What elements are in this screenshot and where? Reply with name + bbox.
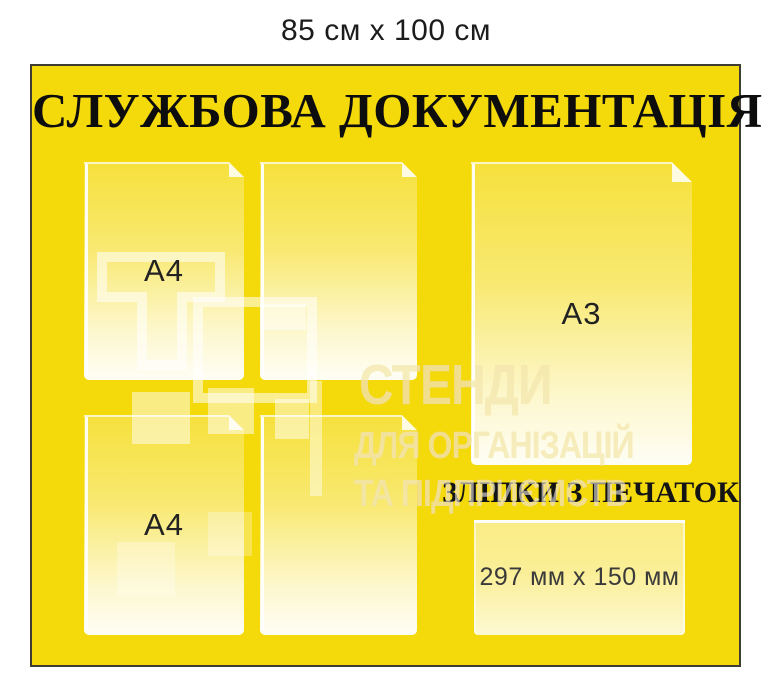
product-image: 85 см x 100 см СЛУЖБОВА ДОКУМЕНТАЦІЯ [0,0,772,700]
a4-pocket-top-middle [260,162,417,380]
pocket-fold-corner [402,415,417,430]
board-size-caption: 85 см x 100 см [0,14,772,48]
a4-pocket-top-left [84,162,244,380]
pocket-fold-corner [229,415,244,430]
a4-pocket-bottom-left [84,415,244,635]
stamps-section-title: ЗЛІПКИ З ПЕЧАТОК [442,476,718,510]
pocket-fold-corner [229,162,244,177]
pocket-fold-corner [672,162,692,182]
pocket-fold-corner [402,162,417,177]
stamps-pocket [474,520,685,635]
information-board: СЛУЖБОВА ДОКУМЕНТАЦІЯ [30,64,741,667]
board-title: СЛУЖБОВА ДОКУМЕНТАЦІЯ [32,82,739,139]
a4-pocket-bottom-middle [260,415,417,635]
a3-pocket [471,162,692,465]
